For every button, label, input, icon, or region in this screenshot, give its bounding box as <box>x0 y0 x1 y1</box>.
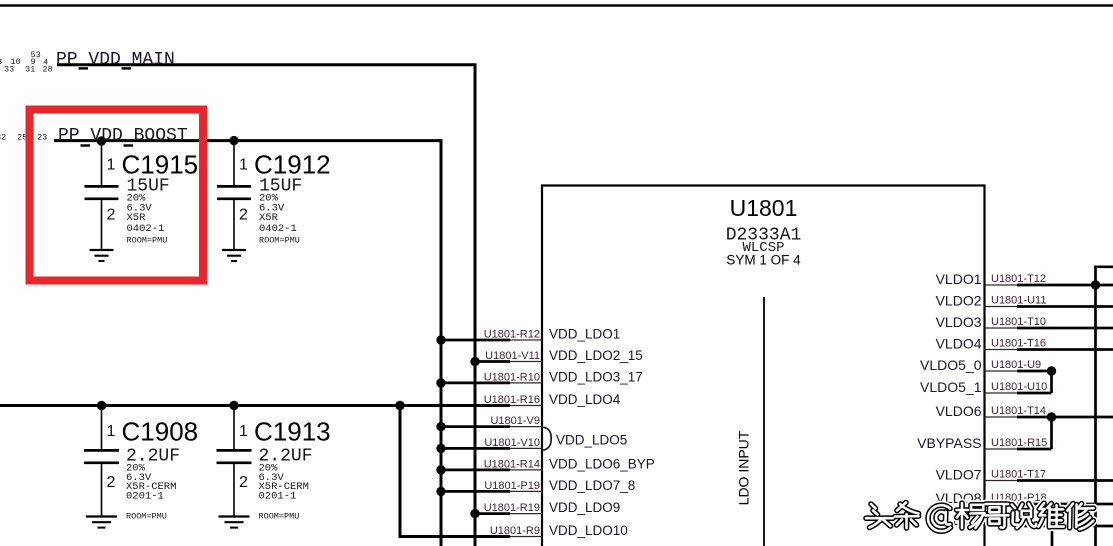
svg-text:ROOM=PMU: ROOM=PMU <box>259 512 300 522</box>
svg-text:2: 2 <box>107 207 116 224</box>
svg-text:VLDO4: VLDO4 <box>936 336 982 352</box>
svg-text:U1801-T10: U1801-T10 <box>991 316 1046 328</box>
svg-text:2: 2 <box>239 207 248 224</box>
svg-text:U1801-T14: U1801-T14 <box>991 405 1046 417</box>
svg-text:ROOM=PMU: ROOM=PMU <box>127 236 168 246</box>
svg-text:U1801-R10: U1801-R10 <box>484 371 540 383</box>
svg-text:U1801-U10: U1801-U10 <box>991 381 1047 393</box>
svg-text:2: 2 <box>239 474 248 491</box>
svg-text:VDD_LDO7_8: VDD_LDO7_8 <box>549 478 635 493</box>
svg-text:U1801-R12: U1801-R12 <box>484 329 540 341</box>
svg-text:U1801-R9: U1801-R9 <box>490 525 540 537</box>
svg-text:SYM 1 OF 4: SYM 1 OF 4 <box>726 253 801 268</box>
svg-text:28: 28 <box>43 65 53 75</box>
svg-text:U1801-R14: U1801-R14 <box>484 458 540 470</box>
svg-text:PP_VDD_MAIN: PP_VDD_MAIN <box>56 50 175 70</box>
svg-text:ROOM=PMU: ROOM=PMU <box>126 512 167 522</box>
svg-text:VDD_LDO4: VDD_LDO4 <box>549 392 621 407</box>
svg-text:VDD_LDO10: VDD_LDO10 <box>549 523 628 538</box>
svg-text:C1908: C1908 <box>122 417 199 447</box>
svg-text:1: 1 <box>107 423 116 440</box>
svg-text:C1915: C1915 <box>122 150 199 180</box>
svg-text:3: 3 <box>0 57 2 67</box>
svg-text:PP_VDD_BOOST: PP_VDD_BOOST <box>58 126 188 146</box>
svg-text:0402-1: 0402-1 <box>259 223 297 235</box>
svg-text:C1913: C1913 <box>254 417 331 447</box>
svg-text:U1801-T16: U1801-T16 <box>991 338 1046 350</box>
svg-text:VLDO7: VLDO7 <box>936 467 982 483</box>
svg-text:LDO INPUT: LDO INPUT <box>736 430 752 505</box>
svg-text:0201-1: 0201-1 <box>259 491 297 503</box>
svg-text:23: 23 <box>37 133 47 143</box>
svg-text:33: 33 <box>4 65 14 75</box>
svg-text:U1801-U9: U1801-U9 <box>991 359 1041 371</box>
svg-text:VDD_LDO6_BYP: VDD_LDO6_BYP <box>549 456 655 471</box>
svg-text:0402-1: 0402-1 <box>127 223 165 235</box>
svg-text:C1912: C1912 <box>254 150 331 180</box>
svg-text:1: 1 <box>107 157 116 174</box>
svg-text:VLDO3: VLDO3 <box>936 314 982 330</box>
svg-text:31: 31 <box>25 65 35 75</box>
svg-text:U1801: U1801 <box>730 195 798 221</box>
svg-text:VLDO2: VLDO2 <box>936 293 982 309</box>
svg-text:VDD_LDO9: VDD_LDO9 <box>549 500 620 515</box>
svg-text:VLDO1: VLDO1 <box>936 271 982 287</box>
svg-text:U1801-V9: U1801-V9 <box>490 415 540 427</box>
svg-text:VDD_LDO1: VDD_LDO1 <box>549 327 620 342</box>
svg-text:U1801-R19: U1801-R19 <box>484 502 540 514</box>
svg-text:U1801-P19: U1801-P19 <box>484 480 540 492</box>
svg-text:U1801-U11: U1801-U11 <box>991 295 1046 307</box>
svg-text:VDD_LDO2_15: VDD_LDO2_15 <box>549 348 643 363</box>
svg-text:0201-1: 0201-1 <box>126 491 164 503</box>
svg-text:VLDO6: VLDO6 <box>936 403 982 419</box>
svg-text:VLDO5_1: VLDO5_1 <box>920 379 982 395</box>
svg-text:VDD_LDO5: VDD_LDO5 <box>556 433 627 448</box>
svg-text:U1801-T17: U1801-T17 <box>991 469 1046 481</box>
svg-text:U1801-V10: U1801-V10 <box>484 437 540 449</box>
svg-text:VDD_LDO3_17: VDD_LDO3_17 <box>549 369 643 384</box>
svg-text:VBYPASS: VBYPASS <box>917 435 981 451</box>
svg-text:32: 32 <box>0 133 6 143</box>
svg-text:VLDO5_0: VLDO5_0 <box>920 357 982 373</box>
svg-text:1: 1 <box>239 423 248 440</box>
svg-text:U1801-R16: U1801-R16 <box>484 394 540 406</box>
svg-text:U1801-V11: U1801-V11 <box>485 350 540 362</box>
svg-text:1: 1 <box>239 157 248 174</box>
svg-text:ROOM=PMU: ROOM=PMU <box>259 236 300 246</box>
svg-text:U1801-T12: U1801-T12 <box>991 273 1046 285</box>
svg-text:U1801-R15: U1801-R15 <box>991 437 1047 449</box>
svg-text:2: 2 <box>107 474 116 491</box>
